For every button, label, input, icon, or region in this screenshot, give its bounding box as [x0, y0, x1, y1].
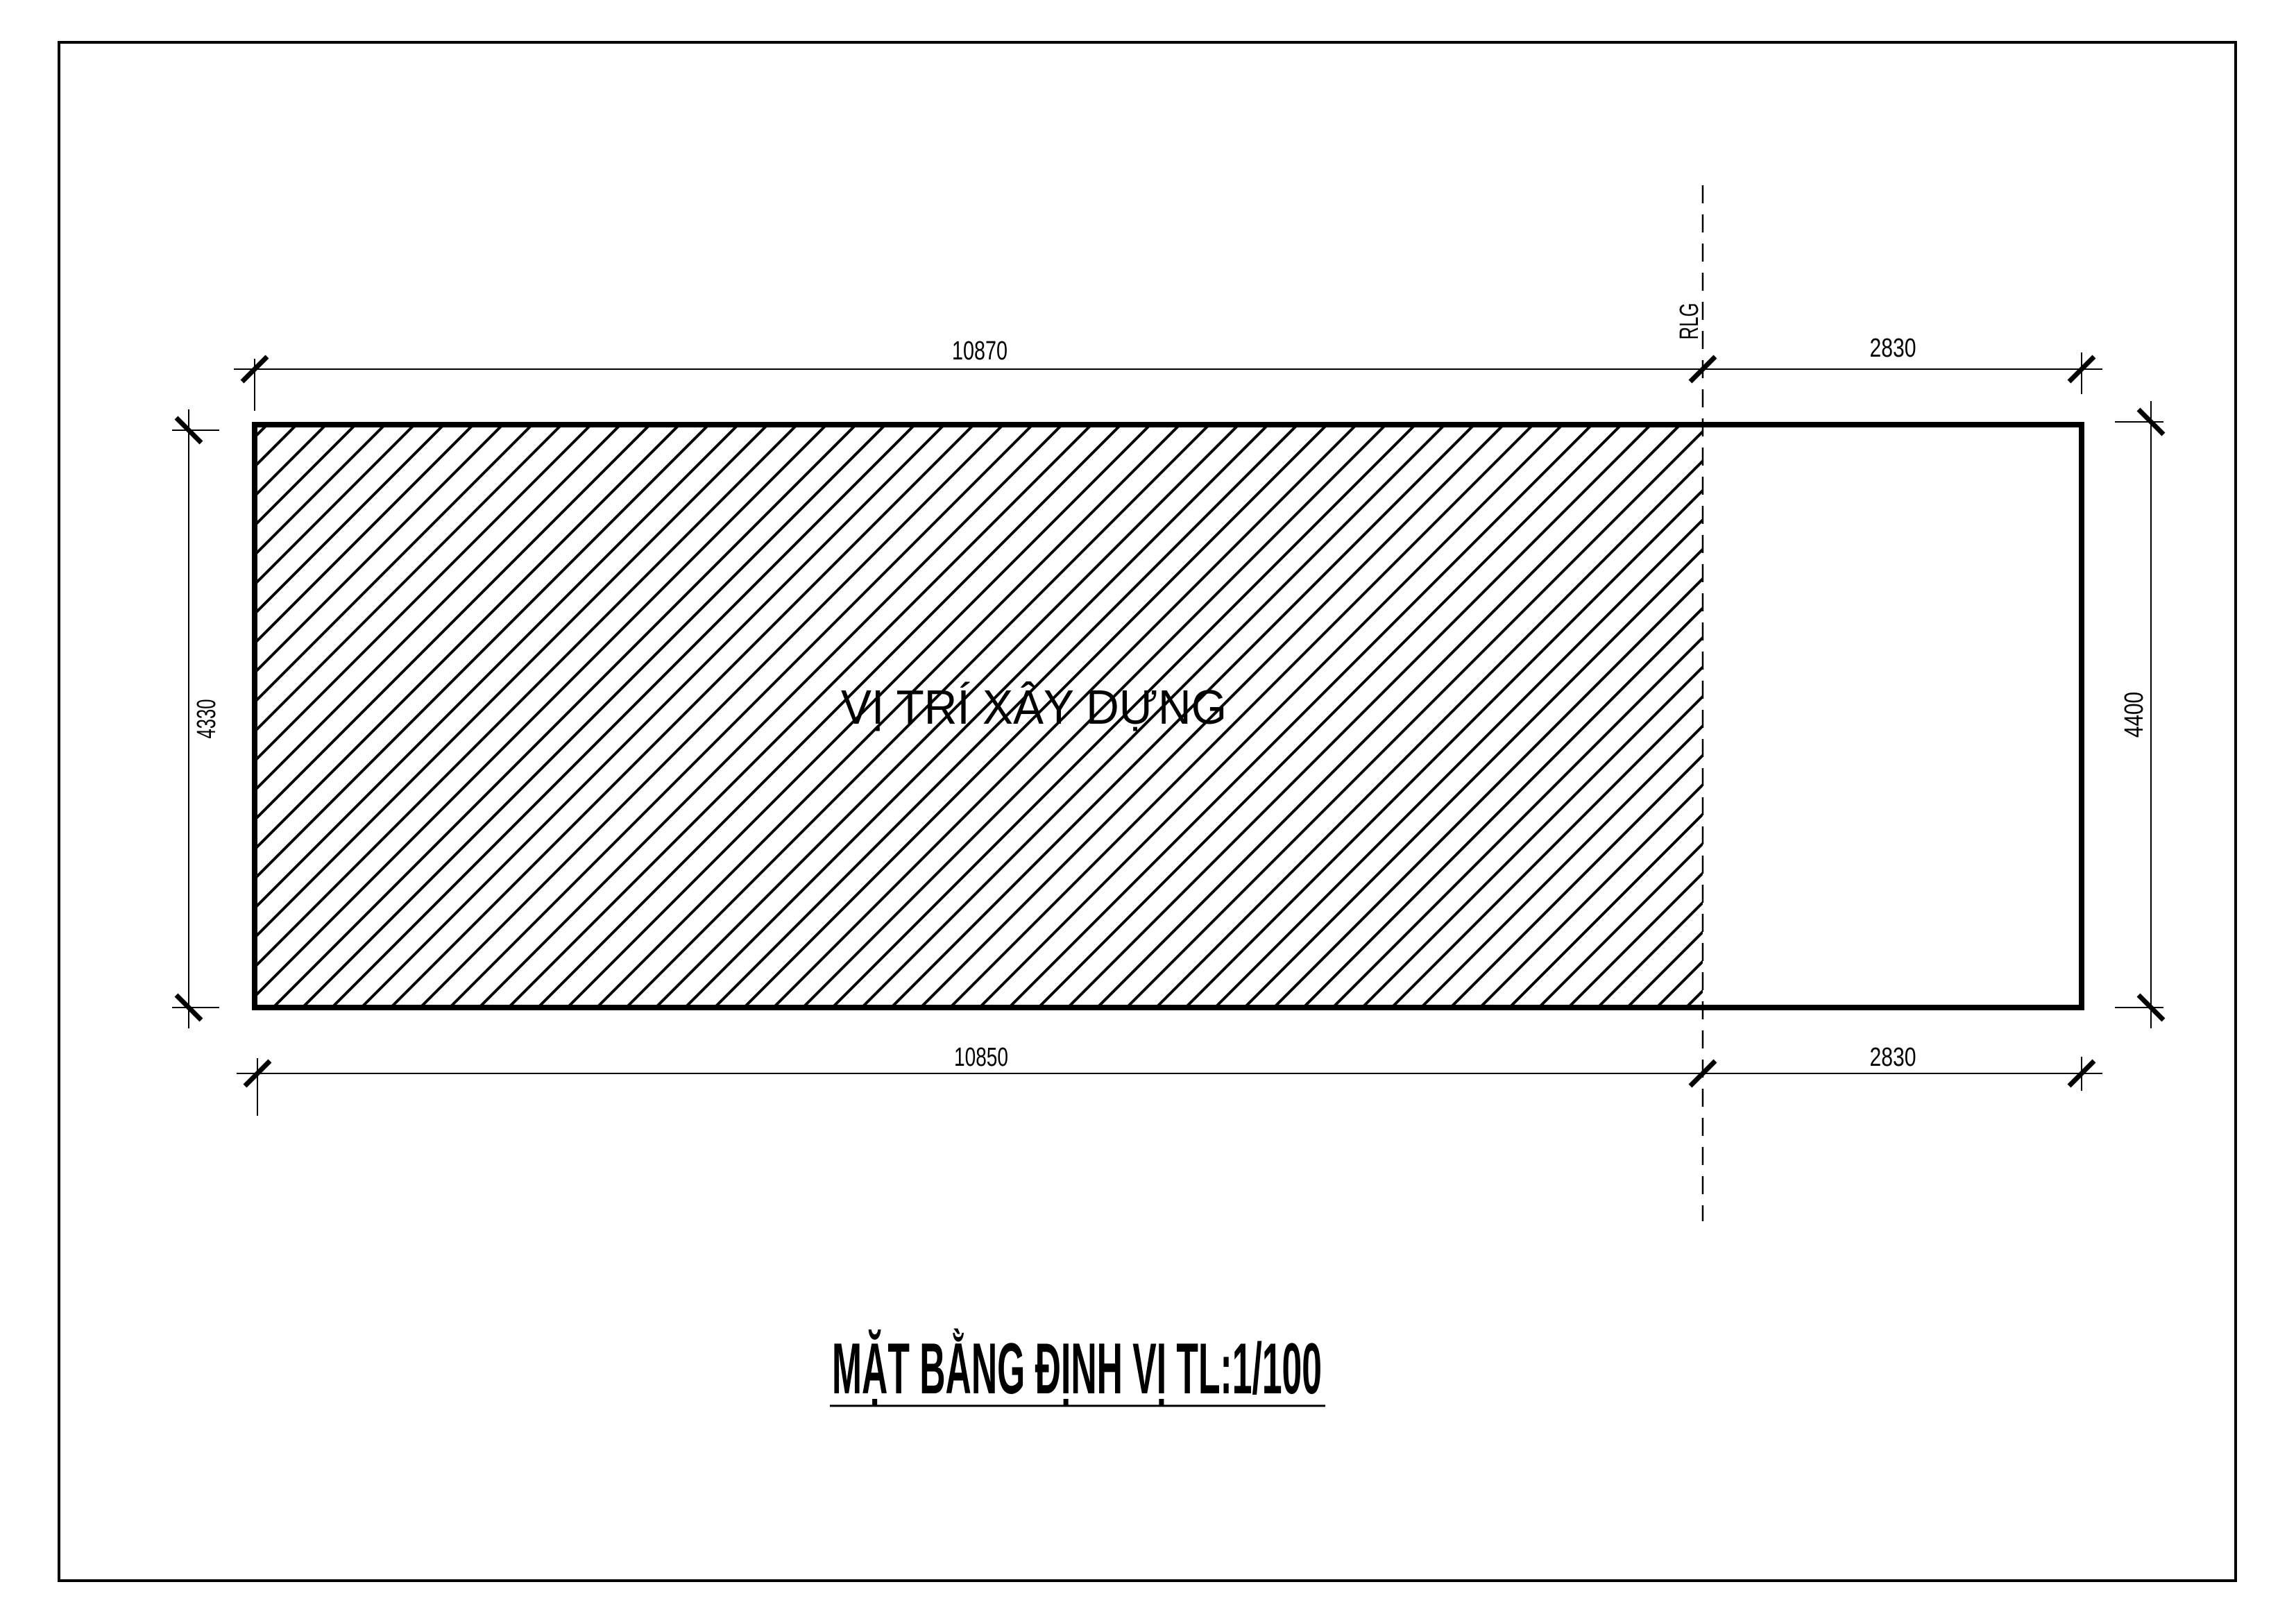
site-plan-drawing: 10870 2830 10850 2830 4330	[0, 0, 2296, 1623]
dim-top-width-label: 10870	[952, 337, 1007, 366]
dimension-left: 4330	[172, 409, 221, 1028]
drawing-title: MẶT BẰNG ĐỊNH VỊ TL:1/100	[832, 1329, 1322, 1409]
dim-top-right-width-label: 2830	[1870, 334, 1916, 363]
dim-left-height-label: 4330	[192, 699, 221, 739]
dimension-right: 4400	[2115, 401, 2163, 1028]
dimension-bottom: 10850 2830	[237, 1043, 2102, 1116]
dimension-top: 10870 2830	[234, 334, 2102, 411]
construction-site-label: VỊ TRÍ XÂY DỰNG	[841, 680, 1227, 734]
dim-bottom-width-label: 10850	[954, 1043, 1008, 1072]
dim-right-height-label: 4400	[2120, 692, 2149, 738]
road-boundary-label: RLG	[1675, 303, 1704, 340]
dim-bottom-right-width-label: 2830	[1870, 1043, 1916, 1072]
drawing-sheet: 10870 2830 10850 2830 4330	[0, 0, 2296, 1623]
